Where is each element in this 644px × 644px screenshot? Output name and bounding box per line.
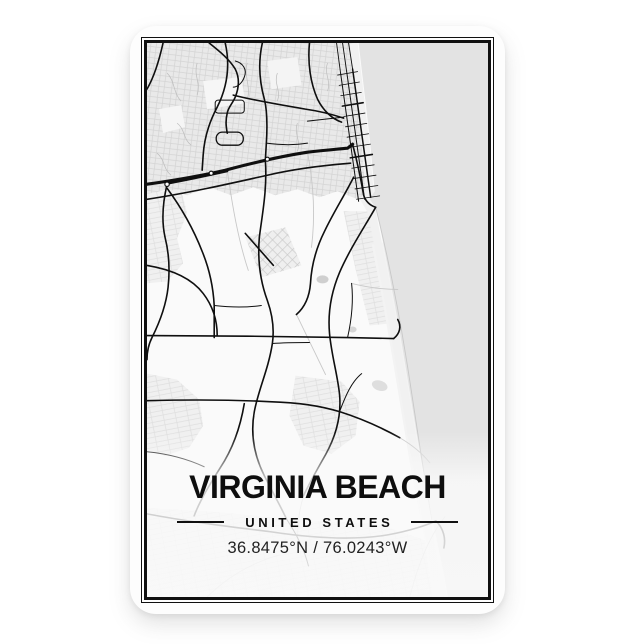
inner-frame-border: VIRGINIA BEACH UNITED STATES 36.8475°N /… [144,40,491,600]
left-rule-line [177,521,224,524]
country-label: UNITED STATES [245,515,393,530]
city-title: VIRGINIA BEACH [147,471,488,505]
city-map: VIRGINIA BEACH UNITED STATES 36.8475°N /… [147,43,488,597]
product-photo: VIRGINIA BEACH UNITED STATES 36.8475°N /… [0,0,644,644]
map-magnet: VIRGINIA BEACH UNITED STATES 36.8475°N /… [130,26,505,614]
outer-frame-border: VIRGINIA BEACH UNITED STATES 36.8475°N /… [141,37,494,603]
coordinates-label: 36.8475°N / 76.0243°W [147,539,488,558]
country-row: UNITED STATES [147,515,488,530]
map-caption-block: VIRGINIA BEACH UNITED STATES 36.8475°N /… [147,471,488,558]
right-rule-line [411,521,458,524]
